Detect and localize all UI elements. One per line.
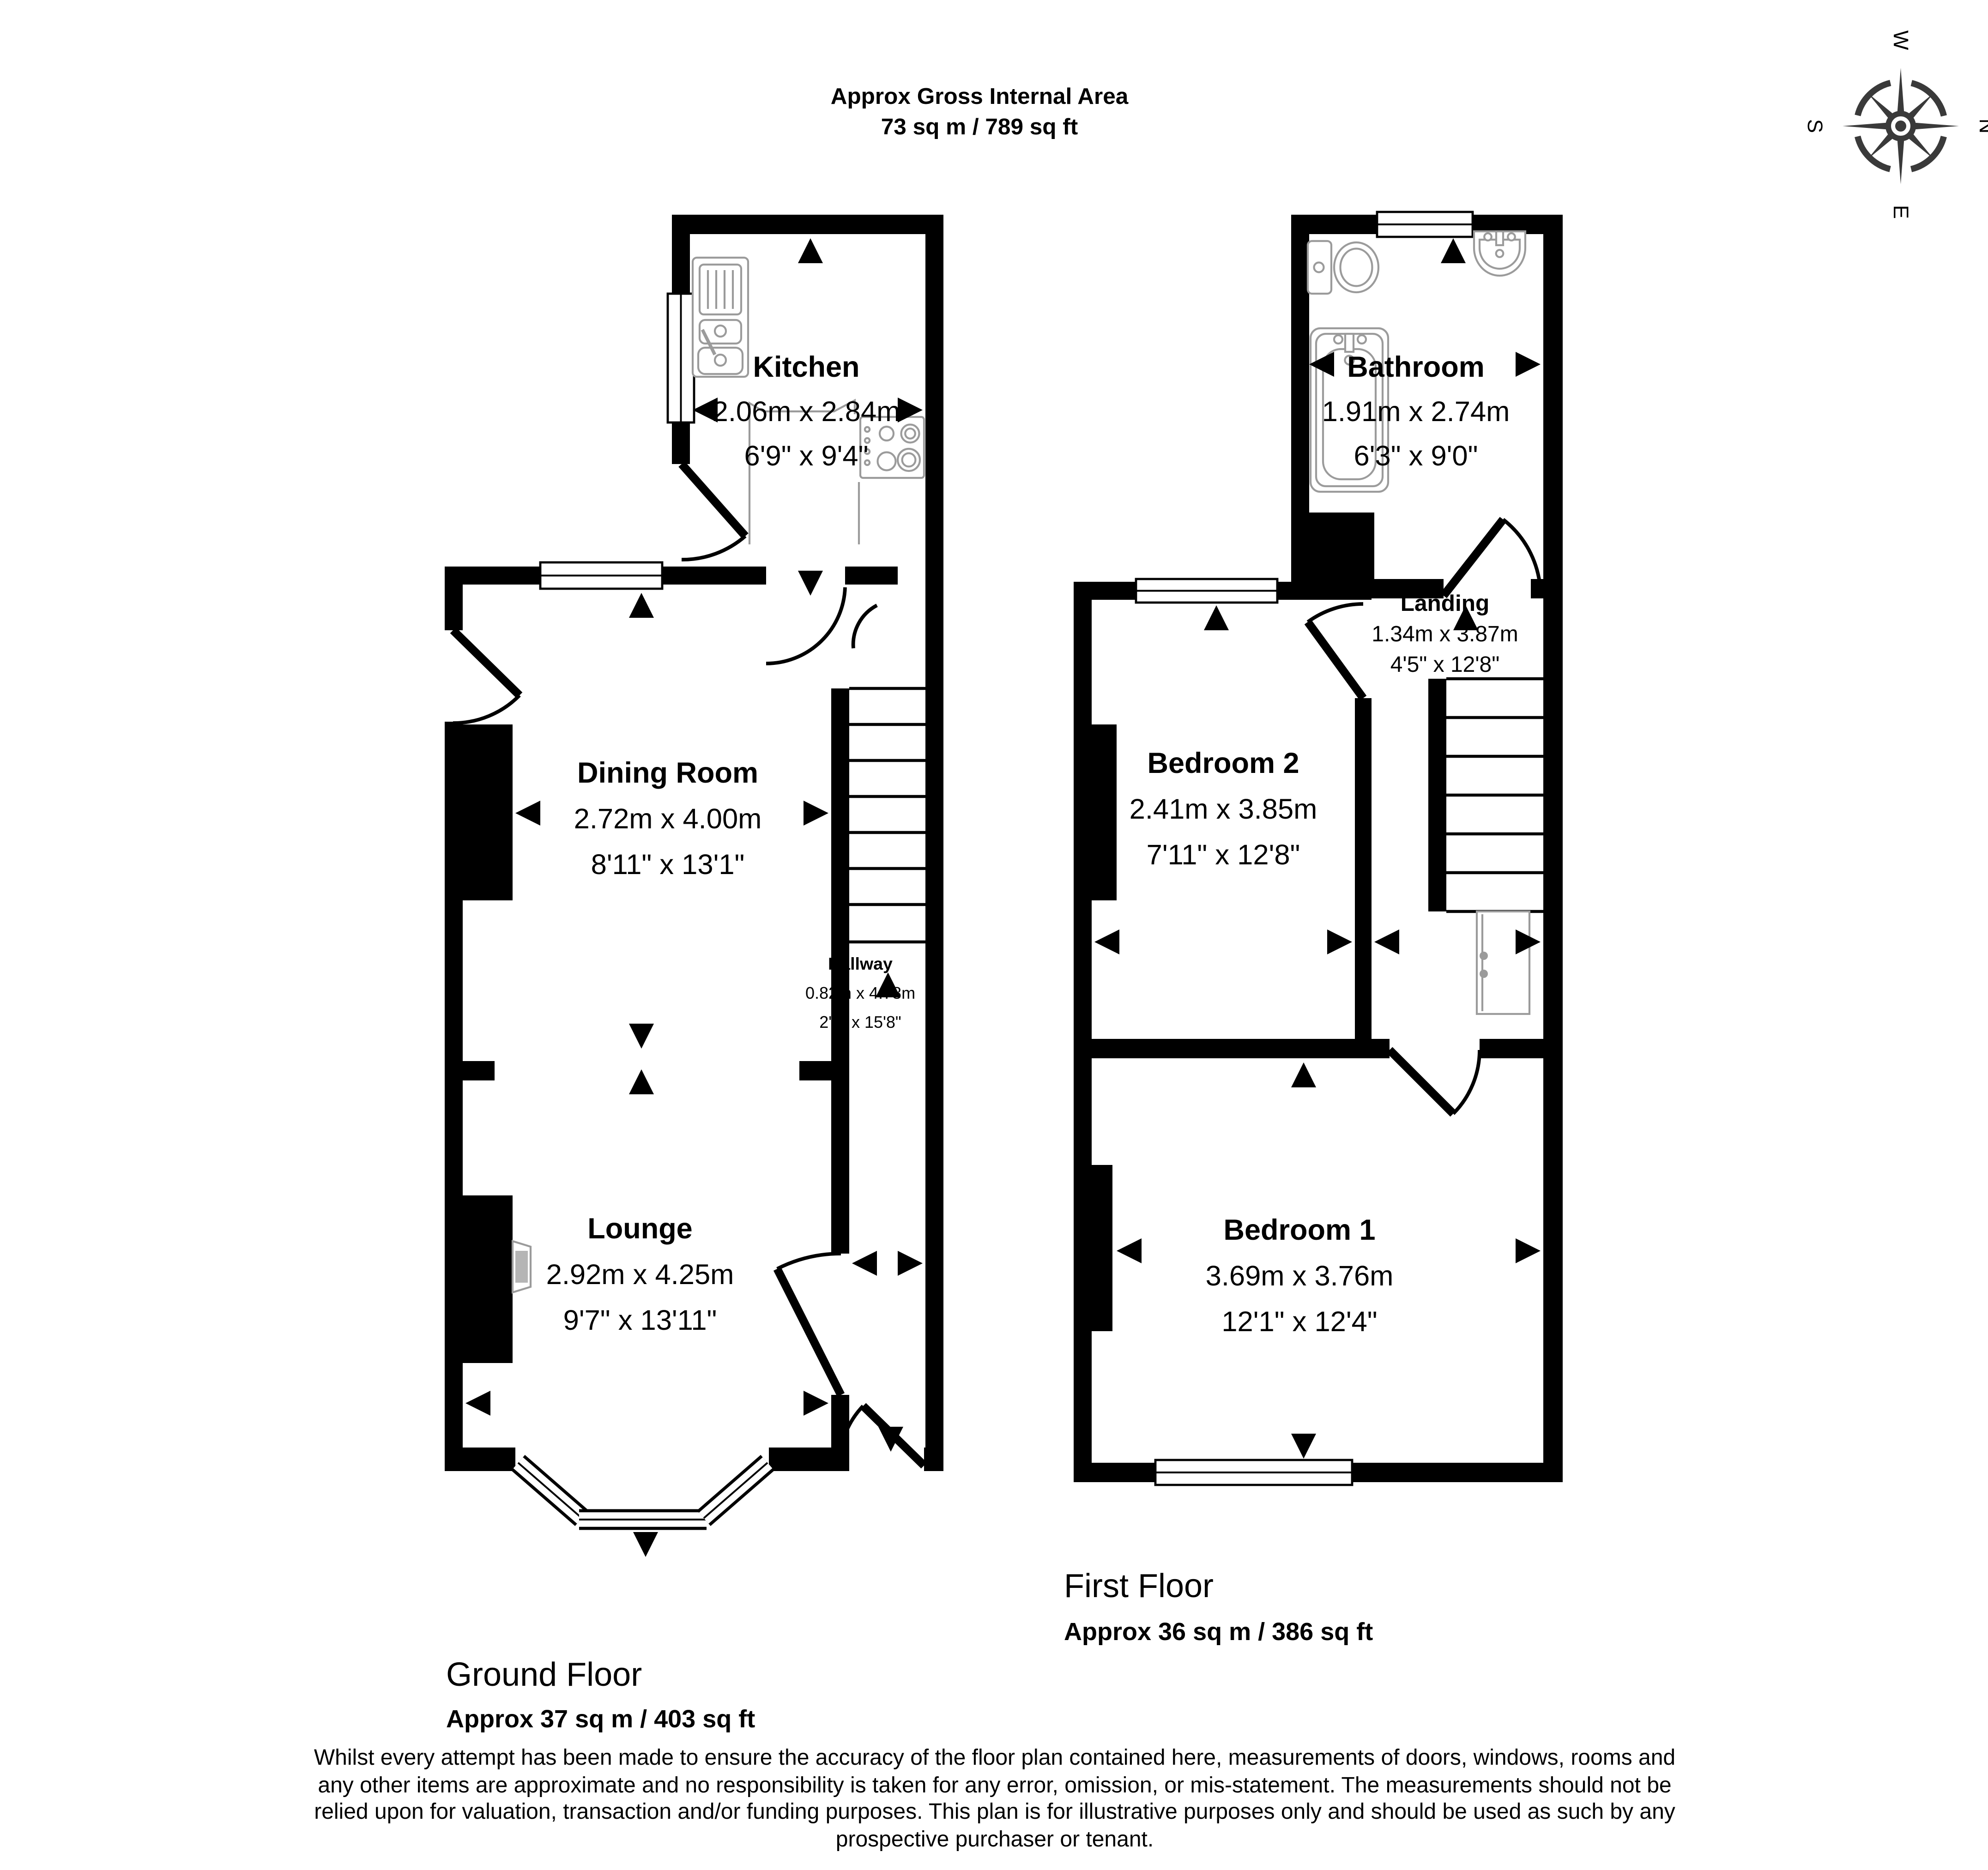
arrow-right-icon — [1516, 352, 1541, 377]
arrow-left-icon — [852, 1251, 877, 1276]
room-name: Bedroom 1 — [1223, 1214, 1375, 1246]
hallway-label: Hallway 0.82m x 4.78m 2'8" x 15'8" — [805, 954, 915, 1032]
door-leaf — [682, 464, 745, 536]
gross-area-value: 73 sq m / 789 sq ft — [881, 114, 1078, 139]
disclaimer-line: prospective purchaser or tenant. — [836, 1827, 1154, 1852]
disclaimer-line: any other items are approximate and no r… — [318, 1773, 1671, 1798]
chimney-breast — [463, 1195, 513, 1363]
door-swing-arc — [1453, 1050, 1480, 1114]
chimney-breast — [463, 724, 513, 900]
disclaimer-text: Whilst every attempt has been made to en… — [314, 1745, 1675, 1852]
arrow-right-icon — [1327, 929, 1352, 954]
room-dims-imperial: 7'11" x 12'8" — [1147, 839, 1300, 871]
first-floor-title: First Floor — [1064, 1568, 1214, 1605]
wall — [1074, 582, 1092, 1482]
room-name: Lounge — [587, 1212, 692, 1245]
arrow-down-icon — [1291, 1434, 1316, 1459]
door-swing-arc — [766, 587, 845, 664]
arrow-down-icon — [798, 571, 823, 596]
wall — [672, 215, 690, 294]
wall — [925, 215, 943, 1471]
sink-drainer — [700, 265, 741, 314]
compass-rose-icon: W N E S — [1803, 30, 1988, 219]
bedroom1-label: Bedroom 1 3.69m x 3.76m 12'1" x 12'4" — [1206, 1214, 1394, 1338]
bay-band-line — [704, 1463, 767, 1518]
room-dims-metric: 0.82m x 4.78m — [805, 983, 915, 1002]
wall — [1092, 1039, 1390, 1058]
wall — [672, 215, 943, 234]
wall — [831, 688, 849, 1061]
wall — [445, 722, 463, 1471]
room-name: Hallway — [828, 954, 893, 973]
room-dims-metric: 3.69m x 3.76m — [1206, 1260, 1394, 1292]
door-leaf — [1308, 622, 1363, 698]
wall — [1480, 1039, 1543, 1058]
arrow-up-icon — [629, 1069, 654, 1094]
compass-west-label: W — [1889, 30, 1913, 50]
arrow-right-icon — [804, 1391, 828, 1416]
arrow-right-icon — [804, 801, 828, 826]
door-swing-arc — [1308, 604, 1363, 622]
gross-area-header: Approx Gross Internal Area 73 sq m / 789… — [831, 84, 1129, 139]
room-name: Bedroom 2 — [1147, 747, 1299, 779]
arrow-up-icon — [629, 593, 654, 618]
lounge-label: Lounge 2.92m x 4.25m 9'7" x 13'11" — [546, 1212, 734, 1336]
room-dims-metric: 2.92m x 4.25m — [546, 1259, 734, 1291]
landing-label: Landing 1.34m x 3.87m 4'5" x 12'8" — [1372, 591, 1518, 677]
wall — [1543, 215, 1563, 1482]
wall — [662, 567, 690, 585]
arrow-left-icon — [515, 801, 540, 826]
room-dims-imperial: 4'5" x 12'8" — [1390, 652, 1500, 677]
room-dims-imperial: 8'11" x 13'1" — [591, 849, 745, 881]
fireplace-icon — [513, 1241, 531, 1292]
arrow-down-icon — [633, 1532, 658, 1557]
room-dims-metric: 1.91m x 2.74m — [1322, 396, 1510, 428]
door-swing-arc — [777, 1254, 841, 1269]
bedroom2-label: Bedroom 2 2.41m x 3.85m 7'11" x 12'8" — [1130, 747, 1317, 871]
ground-floor-title: Ground Floor — [446, 1656, 642, 1693]
compass-hub-dot — [1895, 121, 1906, 132]
wall — [1092, 1463, 1155, 1482]
wall — [1277, 582, 1372, 600]
kitchen-sink-icon — [693, 258, 748, 377]
room-dims-imperial: 6'9" x 9'4" — [744, 440, 869, 472]
wall — [845, 567, 898, 585]
wall — [769, 1448, 837, 1471]
compass-south-label: S — [1803, 119, 1827, 133]
dining-room-label: Dining Room 2.72m x 4.00m 8'11" x 13'1" — [574, 757, 762, 881]
door-leaf — [777, 1269, 841, 1395]
arrow-up-icon — [1204, 605, 1229, 630]
wall — [445, 1061, 495, 1080]
room-dims-metric: 2.72m x 4.00m — [574, 803, 762, 835]
stair-cupboard — [1477, 911, 1529, 1014]
door-leaf — [453, 630, 520, 695]
door-leaf — [1390, 1050, 1453, 1114]
wall — [924, 1448, 943, 1471]
arrow-right-icon — [898, 1251, 923, 1276]
wall — [445, 1448, 515, 1471]
wall — [690, 567, 766, 585]
arrow-left-icon — [1374, 929, 1399, 954]
room-name: Landing — [1401, 591, 1489, 616]
room-labels: Kitchen 2.06m x 2.84m 6'9" x 9'4" Dining… — [546, 351, 1518, 1338]
toilet-icon — [1308, 241, 1378, 294]
arrow-left-icon — [1094, 929, 1119, 954]
wall — [445, 567, 463, 630]
disclaimer-line: relied upon for valuation, transaction a… — [314, 1799, 1675, 1824]
chimney-breast — [1092, 1165, 1112, 1331]
door-swing-arc — [853, 605, 877, 648]
bay-band-line — [518, 1463, 582, 1518]
first-floor-area: Approx 36 sq m / 386 sq ft — [1064, 1618, 1373, 1646]
arrow-up-icon — [798, 238, 823, 263]
wall — [672, 422, 690, 464]
basin-icon — [1474, 231, 1525, 276]
floor-titles: Ground Floor Approx 37 sq m / 403 sq ft … — [446, 1568, 1373, 1733]
room-dims-metric: 2.41m x 3.85m — [1130, 793, 1317, 825]
room-dims-imperial: 6'3" x 9'0" — [1354, 440, 1478, 472]
room-dims-imperial: 9'7" x 13'11" — [563, 1304, 717, 1336]
door-swing-arc — [682, 536, 745, 560]
wall — [1355, 698, 1372, 1039]
ground-floor-stairs — [849, 688, 925, 942]
arrow-down-icon — [629, 1024, 654, 1049]
wall — [1428, 679, 1446, 911]
compass-north-label: N — [1975, 119, 1988, 134]
room-name: Bathroom — [1347, 351, 1485, 383]
disclaimer-line: Whilst every attempt has been made to en… — [314, 1745, 1675, 1770]
bay-window — [518, 1463, 767, 1520]
arrow-right-icon — [1516, 1238, 1541, 1263]
room-dims-imperial: 2'8" x 15'8" — [819, 1013, 901, 1032]
wall — [799, 1061, 849, 1080]
wall — [1352, 1463, 1543, 1482]
room-dims-metric: 2.06m x 2.84m — [713, 396, 900, 428]
arrow-up-icon — [1441, 238, 1466, 263]
arrow-up-icon — [1291, 1062, 1316, 1087]
ground-floor-area: Approx 37 sq m / 403 sq ft — [446, 1705, 755, 1733]
door-swing-arc — [453, 695, 520, 723]
arrow-left-icon — [1117, 1238, 1142, 1263]
wall — [831, 1080, 849, 1254]
room-name: Kitchen — [753, 351, 859, 383]
floor-plan-canvas: Approx Gross Internal Area 73 sq m / 789… — [0, 0, 1988, 1870]
room-dims-imperial: 12'1" x 12'4" — [1221, 1306, 1377, 1338]
compass-east-label: E — [1889, 205, 1913, 219]
first-floor-stairs — [1446, 679, 1543, 911]
arrow-left-icon — [465, 1391, 490, 1416]
floorplan-page: Approx Gross Internal Area 73 sq m / 789… — [0, 0, 1988, 1870]
room-name: Dining Room — [577, 757, 758, 789]
door-leaf — [1444, 519, 1503, 596]
gross-area-title: Approx Gross Internal Area — [831, 84, 1129, 109]
wall — [1291, 215, 1309, 513]
chimney-breast — [1092, 724, 1117, 900]
room-dims-metric: 1.34m x 3.87m — [1372, 622, 1518, 646]
